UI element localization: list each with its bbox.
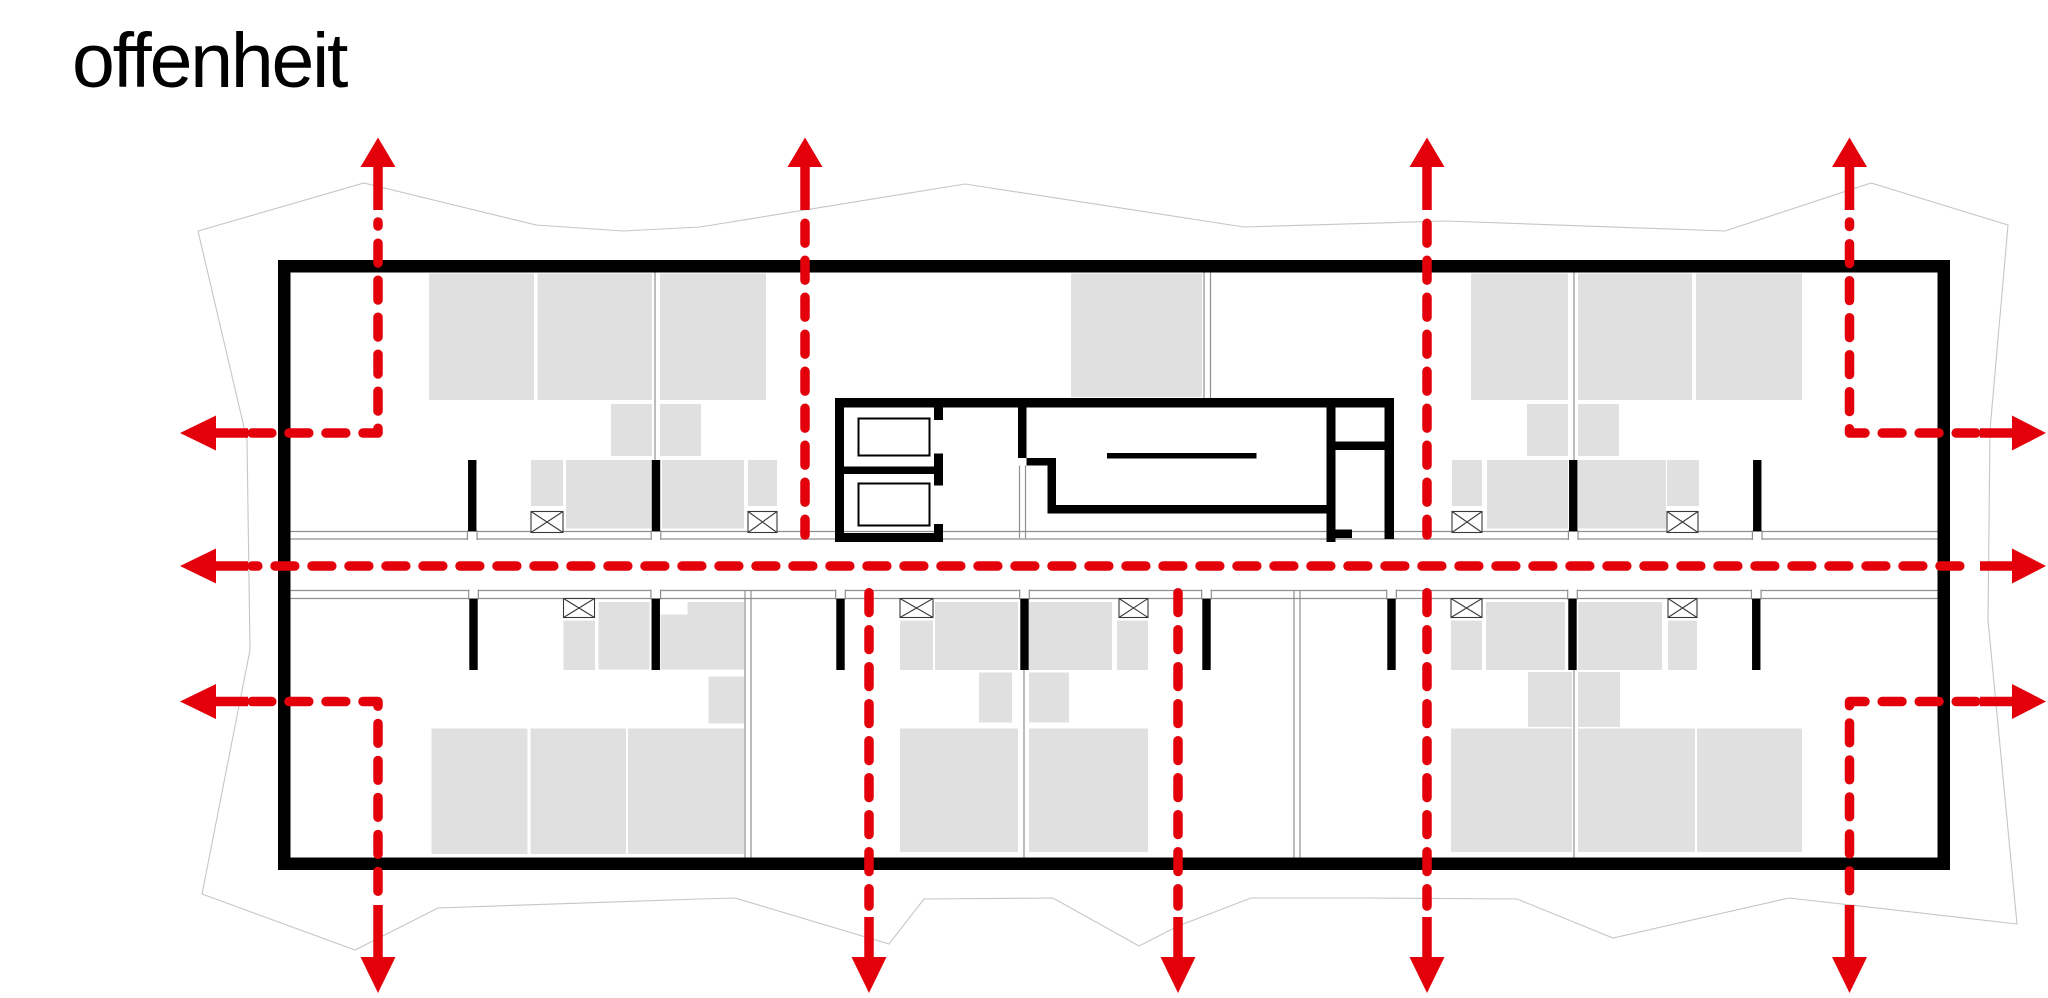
svg-text:offenheit: offenheit (72, 18, 348, 104)
